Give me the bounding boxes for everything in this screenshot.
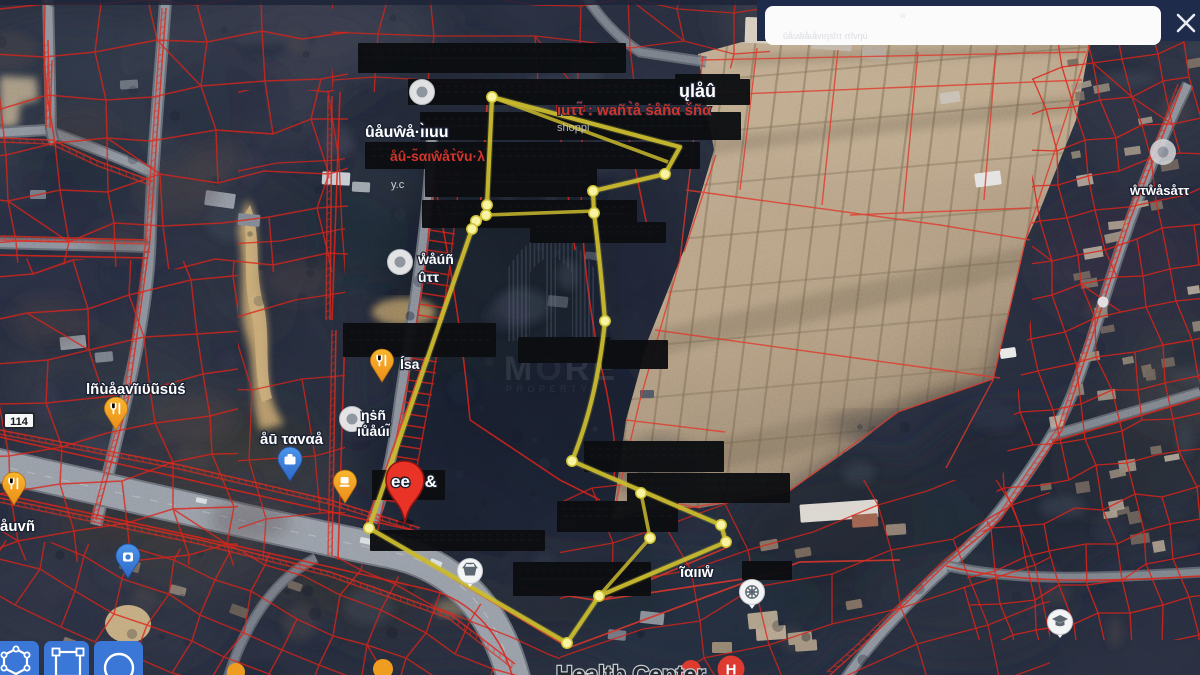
svg-text:ẘτẘåsåττ: ẘτẘåsåττ — [1129, 183, 1190, 198]
svg-text:ûττ: ûττ — [418, 269, 440, 285]
svg-text:114: 114 — [10, 416, 29, 428]
svg-text:ηṡñ: ηṡñ — [361, 407, 386, 423]
svg-text:ûåuŵåıåvıηsĩıτ ıτ̃ıvηú: ûåuŵåıåvıηsĩıτ ıτ̃ıvηú — [783, 31, 868, 41]
svg-text:lñùåavĩıϋũsûś: lñùåavĩıϋũsûś — [86, 381, 186, 398]
svg-text:shoppi: shoppi — [557, 122, 589, 134]
svg-text:Health Center: Health Center — [556, 661, 706, 675]
svg-text:y.c: y.c — [391, 179, 405, 191]
svg-text:ıůåúı̃: ıůåúı̃ — [357, 422, 391, 439]
svg-text:PROPERTY: PROPERTY — [506, 384, 591, 394]
svg-text:ûåuŵå·ı̀ıuu: ûåuŵå·ı̀ıuu — [365, 121, 449, 141]
svg-text:ĩαııẘ: ĩαııẘ — [679, 564, 714, 581]
svg-text:H: H — [726, 662, 737, 675]
svg-text:ĺsa: ĺsa — [400, 355, 420, 372]
svg-text:ıuττ̃ : wañτ̀å ṡåñα ṡ̈ñα: ıuττ̃ : wañτ̀å ṡåñα ṡ̈ñα — [557, 101, 712, 119]
svg-text:åū ταvαå: åū ταvαå — [260, 431, 324, 448]
svg-text:w: w — [899, 11, 906, 20]
svg-text:ee &: ee & — [391, 472, 437, 491]
svg-text:ųlåû: ųlåû — [679, 81, 716, 101]
svg-text:ẘåúñ: ẘåúñ — [417, 251, 454, 267]
svg-text:åuvñ: åuvñ — [0, 518, 35, 535]
svg-text:åû-s̃αıŵåτ̀ṽu·λ: åû-s̃αıŵåτ̀ṽu·λ — [390, 147, 485, 164]
